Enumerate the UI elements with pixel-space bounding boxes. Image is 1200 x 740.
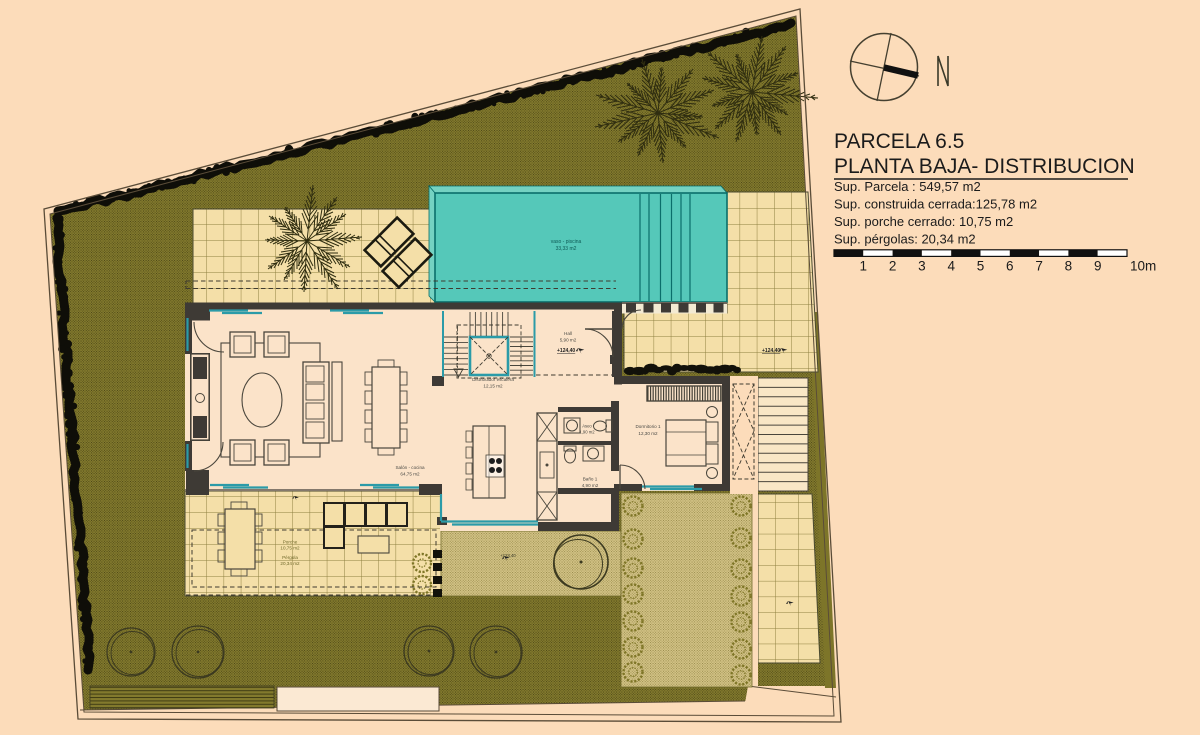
svg-text:PLANTA BAJA- DISTRIBUCION: PLANTA BAJA- DISTRIBUCION	[834, 155, 1135, 178]
svg-text:Baño 1: Baño 1	[583, 477, 598, 482]
svg-text:3: 3	[918, 259, 926, 274]
svg-text:12,15 m2: 12,15 m2	[483, 384, 503, 389]
svg-text:+124,40: +124,40	[500, 553, 516, 558]
svg-text:33,33 m2: 33,33 m2	[556, 246, 577, 252]
svg-text:Aseo: Aseo	[582, 424, 592, 429]
svg-text:Sup. construida cerrada:125,78: Sup. construida cerrada:125,78 m2	[834, 197, 1037, 212]
svg-text:20,34 m2: 20,34 m2	[280, 561, 300, 566]
svg-text:Salón - cocina: Salón - cocina	[395, 465, 425, 470]
svg-text:PARCELA 6.5: PARCELA 6.5	[834, 130, 964, 153]
svg-text:Sup. porche cerrado: 10,75 m2: Sup. porche cerrado: 10,75 m2	[834, 214, 1013, 229]
svg-text:1: 1	[860, 259, 868, 274]
svg-text:7: 7	[1035, 259, 1043, 274]
svg-text:Sup. pérgolas: 20,34 m2: Sup. pérgolas: 20,34 m2	[834, 232, 976, 247]
svg-text:Porche: Porche	[283, 540, 298, 545]
svg-text:5,90 m2: 5,90 m2	[560, 338, 577, 343]
svg-text:vaso - piscina: vaso - piscina	[551, 239, 582, 245]
svg-text:Distribuidor escalera: Distribuidor escalera	[472, 377, 514, 382]
svg-text:+124,40: +124,40	[557, 348, 575, 354]
svg-text:1,90 m2: 1,90 m2	[579, 430, 595, 435]
svg-text:64,75 m2: 64,75 m2	[400, 472, 420, 477]
svg-text:5: 5	[977, 259, 985, 274]
svg-text:+124,40: +124,40	[762, 348, 780, 354]
svg-text:12,30 m2: 12,30 m2	[638, 431, 658, 436]
svg-text:Dormitorio 1: Dormitorio 1	[635, 424, 660, 429]
svg-text:4,90 m2: 4,90 m2	[582, 483, 599, 488]
svg-text:9: 9	[1094, 259, 1102, 274]
svg-text:4: 4	[947, 259, 955, 274]
svg-text:2: 2	[889, 259, 897, 274]
svg-text:10,75 m2: 10,75 m2	[280, 546, 300, 551]
svg-text:Hall: Hall	[564, 331, 572, 336]
svg-text:Pérgola: Pérgola	[282, 555, 298, 560]
svg-text:8: 8	[1065, 259, 1073, 274]
svg-text:10m: 10m	[1130, 259, 1156, 274]
svg-text:Sup. Parcela : 549,57 m2: Sup. Parcela : 549,57 m2	[834, 179, 981, 194]
svg-text:6: 6	[1006, 259, 1014, 274]
